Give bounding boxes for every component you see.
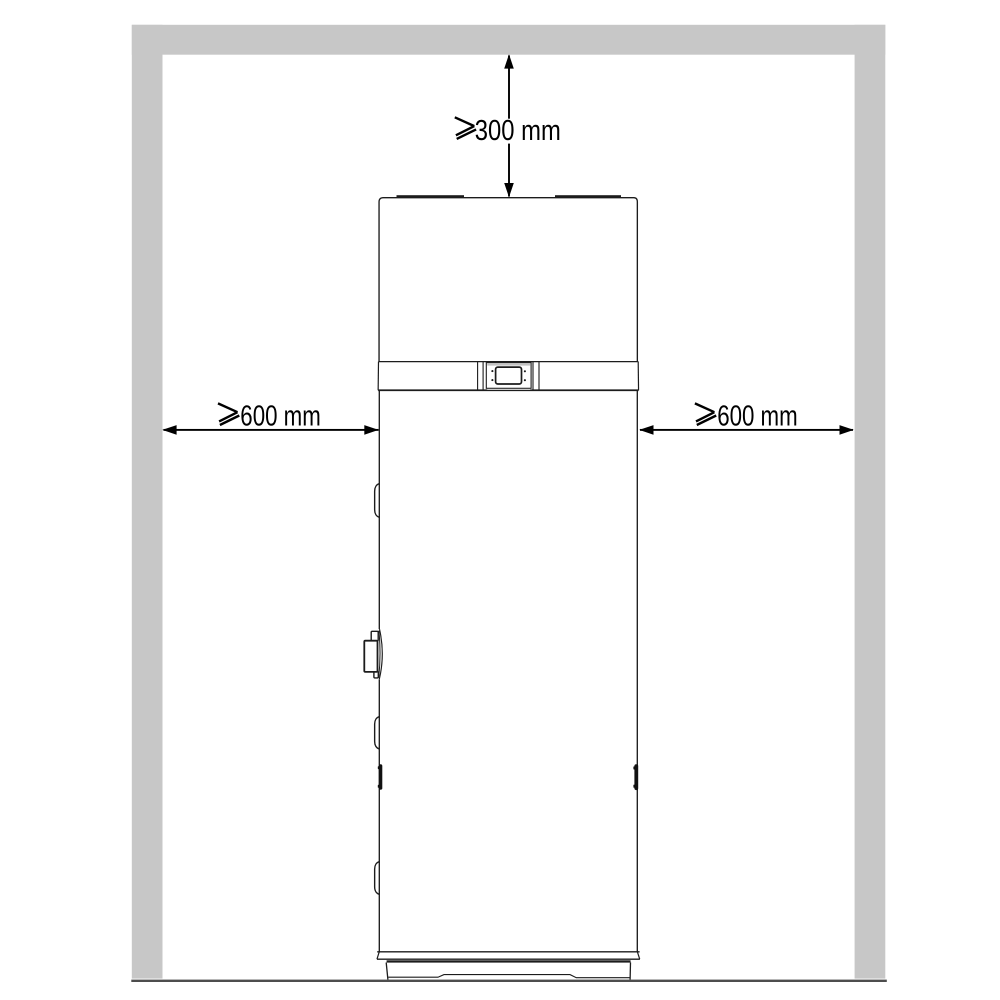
svg-text:300 mm: 300 mm — [475, 115, 561, 147]
svg-text:600 mm: 600 mm — [240, 401, 320, 433]
svg-text:600 mm: 600 mm — [717, 401, 798, 433]
